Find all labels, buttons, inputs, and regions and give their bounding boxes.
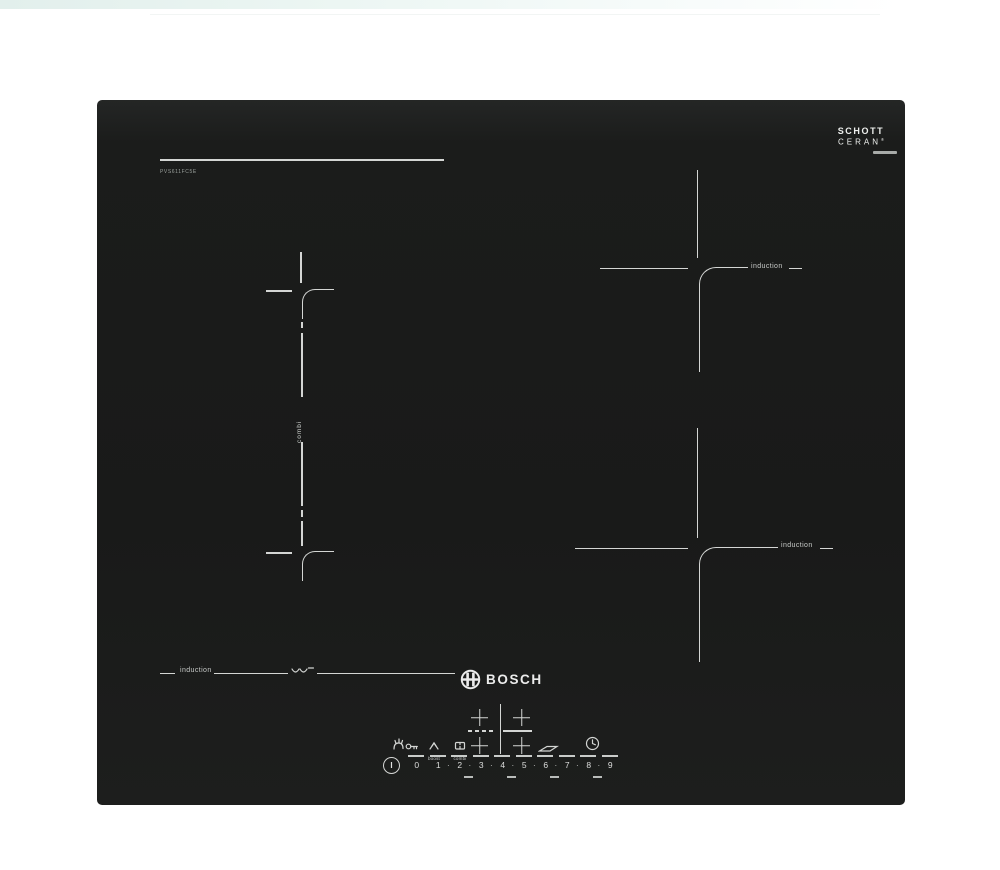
- page-top-hairline: [150, 14, 880, 15]
- level-key-6[interactable]: ·6: [535, 755, 557, 775]
- ceran-word: CERAN®: [819, 137, 903, 147]
- level-under-tick: [507, 776, 516, 778]
- combi-link-segment: [301, 333, 303, 397]
- combi-link-segment: [301, 510, 303, 517]
- level-key-3[interactable]: ·3: [471, 755, 493, 775]
- power-onoff-key[interactable]: I: [383, 757, 400, 774]
- combi-bottom-zone-corner: [302, 551, 334, 581]
- level-under-tick: [550, 776, 559, 778]
- bottom-left-zone-line: [214, 673, 288, 675]
- combi-zone-label: combi: [296, 399, 303, 443]
- combi-top-zone-corner: [302, 289, 334, 319]
- right-bottom-zone-horizontal: [575, 548, 688, 550]
- zone-map-combi-bridge-dashed: [468, 730, 495, 732]
- combi-link-segment: [301, 442, 303, 506]
- combi-top-cross-horizontal: [266, 290, 292, 292]
- timer-key[interactable]: [584, 736, 600, 756]
- zone-select-front-left-key[interactable]: [471, 709, 488, 726]
- top-decor-line: [160, 159, 444, 161]
- schott-ceran-logo: SCHOTT CERAN®: [819, 126, 903, 154]
- combi-bottom-cross-vertical: [301, 521, 303, 546]
- childlock-hand-key-icon: [392, 738, 419, 752]
- induction-label-bottom-left: induction: [180, 667, 212, 674]
- registered-mark: ®: [881, 137, 884, 142]
- combi-bottom-cross-horizontal: [266, 552, 292, 554]
- bosch-wordmark: BOSCH: [486, 672, 543, 687]
- level-under-tick: [593, 776, 602, 778]
- right-bottom-zone-corner: [699, 547, 778, 662]
- page-top-tint: [0, 0, 900, 9]
- product-photo-page: { "branding": { "model": "PVS611FC5E", "…: [0, 0, 1000, 870]
- induction-label-dash: [820, 548, 833, 550]
- induction-label-dash: [789, 268, 802, 270]
- zone-select-front-right-key[interactable]: [513, 709, 530, 726]
- boost-icon: [428, 741, 440, 750]
- combi-link-segment: [301, 322, 303, 328]
- schott-word: SCHOTT: [819, 126, 903, 136]
- zone-map-divider: [500, 704, 502, 754]
- induction-label-dash: [160, 673, 175, 675]
- level-key-1[interactable]: 1: [428, 755, 450, 775]
- right-top-zone-vertical: [697, 170, 699, 258]
- induction-label-top-right: induction: [751, 263, 783, 270]
- level-key-5[interactable]: ·5: [514, 755, 536, 775]
- timer-clock-icon: [585, 736, 600, 751]
- zone-select-rear-left-key[interactable]: [471, 737, 488, 754]
- wipe-protection-icon: [538, 744, 559, 753]
- level-key-8[interactable]: ·8: [578, 755, 600, 775]
- model-number: PVS611FC5E: [160, 169, 197, 175]
- combi-top-cross-vertical: [300, 252, 302, 283]
- level-key-7[interactable]: ·7: [557, 755, 579, 775]
- power-level-slider[interactable]: I 0 1 ·2 ·3 ·4 ·5 ·6 ·7 ·8 ·9: [383, 755, 621, 775]
- ceran-tagline-mark: [873, 151, 897, 154]
- induction-label-bottom-right: induction: [781, 542, 813, 549]
- level-key-0[interactable]: 0: [406, 755, 428, 775]
- bosch-logo: BOSCH: [460, 669, 543, 690]
- bosch-armature-icon: [460, 669, 481, 690]
- pan-detection-icon: [291, 666, 314, 678]
- zone-map-right-divider: [503, 730, 532, 732]
- right-bottom-zone-vertical: [697, 428, 699, 538]
- right-top-zone-horizontal: [600, 268, 688, 270]
- level-key-2[interactable]: ·2: [449, 755, 471, 775]
- right-top-zone-corner: [699, 267, 748, 372]
- combi-icon: [454, 741, 466, 750]
- zone-select-rear-right-key[interactable]: [513, 737, 530, 754]
- level-under-tick: [464, 776, 473, 778]
- bottom-left-zone-line: [317, 673, 455, 675]
- level-key-9[interactable]: ·9: [600, 755, 622, 775]
- cooktop-glass-panel: PVS611FC5E SCHOTT CERAN® combi induction…: [97, 100, 905, 805]
- level-key-4[interactable]: ·4: [492, 755, 514, 775]
